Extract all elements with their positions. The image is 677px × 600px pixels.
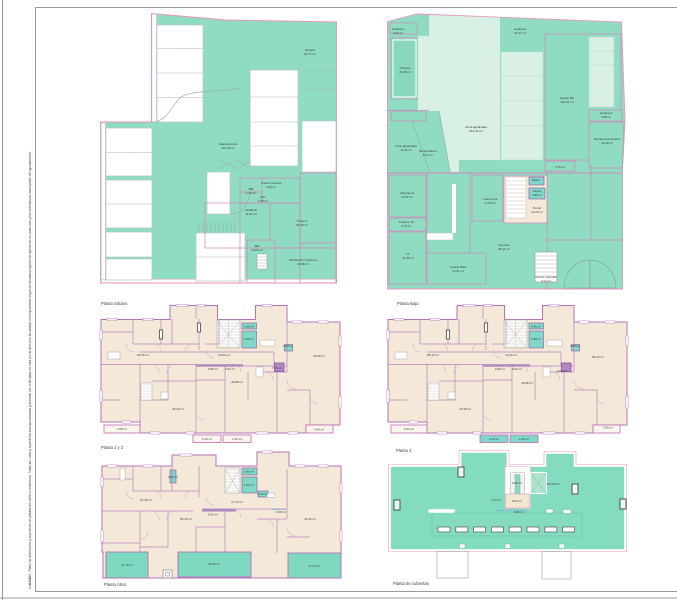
svg-text:1.66 m²: 1.66 m² [244, 483, 254, 487]
svg-text:0.89 m²: 0.89 m² [570, 344, 580, 348]
svg-text:Planta Ático: Planta Ático [104, 582, 127, 587]
svg-text:8.08 m²: 8.08 m² [512, 481, 522, 485]
svg-text:17.44 m²: 17.44 m² [308, 564, 320, 568]
svg-text:0.75 m²: 0.75 m² [258, 199, 268, 203]
svg-text:11.46 m²: 11.46 m² [402, 256, 414, 260]
svg-text:Planta Baja: Planta Baja [397, 301, 419, 306]
svg-text:9.02 m²: 9.02 m² [423, 153, 433, 157]
svg-text:614.26 m²: 614.26 m² [469, 129, 483, 133]
svg-text:Planta 1 y 2: Planta 1 y 2 [101, 445, 124, 450]
svg-text:0.98 m²: 0.98 m² [495, 367, 505, 371]
svg-text:Wasco: Wasco [532, 178, 540, 182]
svg-text:230.98 m²: 230.98 m² [546, 482, 560, 486]
svg-text:4.10 m²: 4.10 m² [491, 498, 501, 502]
svg-text:4.76 m²: 4.76 m² [401, 224, 411, 228]
svg-text:2.88 m²: 2.88 m² [531, 337, 541, 341]
svg-text:46.30 m²: 46.30 m² [601, 141, 613, 145]
svg-text:40.88 m²: 40.88 m² [231, 380, 243, 384]
svg-text:4.88 m²: 4.88 m² [601, 115, 611, 119]
svg-text:4.08 m²: 4.08 m² [117, 427, 127, 431]
svg-text:80.43 m²: 80.43 m² [592, 355, 604, 359]
svg-text:9.04 m²: 9.04 m² [512, 499, 522, 503]
svg-text:Planta Sótano: Planta Sótano [101, 301, 128, 306]
svg-text:7.06 m²: 7.06 m² [272, 366, 282, 370]
svg-text:Planta de cubiertas: Planta de cubiertas [393, 581, 429, 586]
svg-text:83.50 m²: 83.50 m² [137, 353, 149, 357]
svg-text:Depósi: Depósi [533, 189, 541, 193]
svg-text:4.08 m²: 4.08 m² [314, 428, 324, 432]
svg-text:44.29 m²: 44.29 m² [304, 517, 316, 521]
svg-text:0.98 m²: 0.98 m² [276, 510, 286, 514]
svg-text:4.76 m²: 4.76 m² [555, 165, 565, 169]
svg-text:120.41 m²: 120.41 m² [560, 100, 574, 104]
svg-text:1.19 m²: 1.19 m² [246, 191, 256, 195]
svg-text:2.30 m²: 2.30 m² [232, 437, 242, 441]
svg-text:0.22 m²: 0.22 m² [258, 492, 268, 496]
svg-text:98.11 m²: 98.11 m² [498, 247, 510, 251]
svg-text:24.37 m²: 24.37 m² [514, 31, 526, 35]
svg-text:447.43 m²: 447.43 m² [221, 146, 235, 150]
svg-text:0.96 m²: 0.96 m² [531, 325, 541, 329]
svg-text:0.66 m²: 0.66 m² [514, 510, 524, 514]
svg-text:0.89 m²: 0.89 m² [283, 344, 293, 348]
svg-text:6.22 m²: 6.22 m² [404, 427, 414, 431]
svg-text:4.36 m²: 4.36 m² [603, 426, 613, 430]
svg-text:85.43 m²: 85.43 m² [427, 353, 439, 357]
svg-text:2.88 m²: 2.88 m² [533, 193, 542, 197]
svg-text:3.60 m²: 3.60 m² [393, 31, 403, 35]
svg-text:43.30 m²: 43.30 m² [459, 407, 471, 411]
svg-text:24.08 m²: 24.08 m² [208, 562, 220, 566]
svg-text:4.96 m²: 4.96 m² [266, 185, 276, 189]
svg-text:43.30 m²: 43.30 m² [172, 407, 184, 411]
svg-text:12.94 m²: 12.94 m² [218, 353, 230, 357]
svg-text:14.20 m²: 14.20 m² [531, 210, 543, 214]
svg-text:14.70 m²: 14.70 m² [121, 563, 133, 567]
svg-text:0.98 m²: 0.98 m² [208, 367, 218, 371]
svg-text:4.80 m²: 4.80 m² [557, 369, 567, 373]
svg-text:11.84 m²: 11.84 m² [245, 212, 257, 216]
svg-text:0.96 m²: 0.96 m² [244, 325, 254, 329]
svg-text:0.92 m²: 0.92 m² [225, 367, 235, 371]
svg-text:0.92 m²: 0.92 m² [208, 513, 218, 517]
svg-text:E 1/100 - Plano de distribuc: E 1/100 - Plano de distribucion y superf… [28, 151, 32, 585]
svg-text:46.48 m²: 46.48 m² [399, 70, 411, 74]
svg-text:2.88 m²: 2.88 m² [244, 337, 254, 341]
svg-text:Planta 3: Planta 3 [396, 448, 412, 453]
svg-text:PLANO 02: PLANO 02 [28, 576, 32, 589]
svg-text:17.09 m²: 17.09 m² [484, 201, 496, 205]
svg-text:81.36 m²: 81.36 m² [140, 498, 152, 502]
svg-text:60.09 m²: 60.09 m² [313, 354, 325, 358]
svg-text:2.30 m²: 2.30 m² [519, 437, 529, 441]
svg-text:0.65 m²: 0.65 m² [168, 475, 178, 479]
svg-text:11.30 m²: 11.30 m² [400, 148, 412, 152]
svg-text:13.61 m²: 13.61 m² [452, 269, 464, 273]
svg-text:12.94 m²: 12.94 m² [505, 353, 517, 357]
svg-text:0.96 m²: 0.96 m² [244, 470, 254, 474]
svg-text:3.22 m²: 3.22 m² [541, 279, 551, 283]
svg-text:86.43 m²: 86.43 m² [180, 517, 192, 521]
svg-text:10.84 m²: 10.84 m² [251, 248, 263, 252]
svg-text:2.30 m²: 2.30 m² [489, 437, 499, 441]
svg-text:43.89 m²: 43.89 m² [521, 381, 533, 385]
svg-text:2.40 m²: 2.40 m² [202, 437, 212, 441]
svg-text:53.19 m²: 53.19 m² [296, 223, 308, 227]
svg-text:17.93 m²: 17.93 m² [401, 195, 413, 199]
svg-text:17.13 m²: 17.13 m² [231, 500, 243, 504]
svg-text:0.92 m²: 0.92 m² [512, 367, 522, 371]
svg-text:62.77 m²: 62.77 m² [304, 52, 316, 56]
svg-text:19.98 m²: 19.98 m² [297, 262, 309, 266]
